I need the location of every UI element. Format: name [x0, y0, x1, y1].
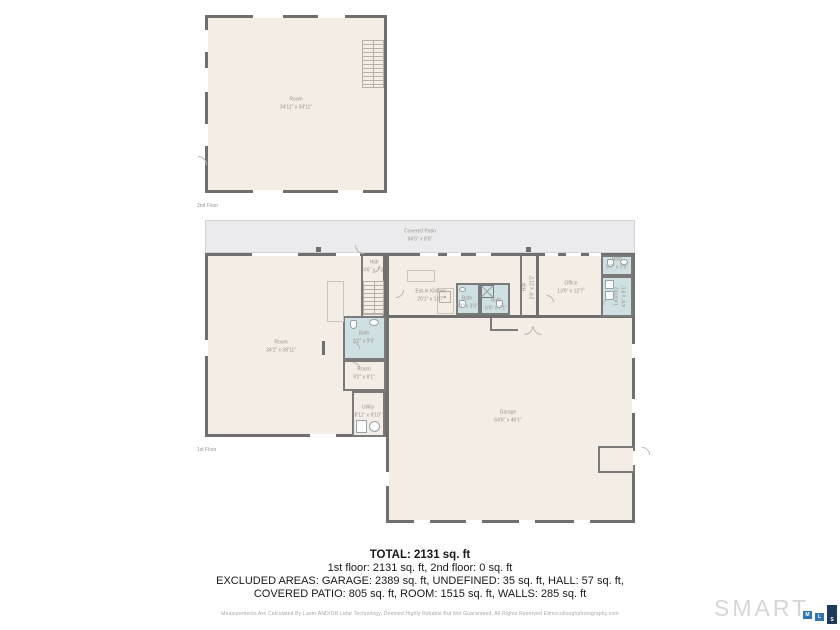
staircase — [362, 40, 384, 88]
toilet-icon — [350, 320, 357, 329]
patio-post — [526, 247, 531, 252]
room-name: Room — [353, 367, 375, 375]
floor-caption-1st: 1st Floor — [197, 447, 216, 453]
room-name: Bath — [456, 296, 478, 304]
staircase — [363, 281, 384, 315]
window — [205, 124, 208, 146]
area-summary: TOTAL: 2131 sq. ft 1st floor: 2131 sq. f… — [0, 549, 840, 601]
summary-floors: 1st floor: 2131 sq. ft, 2nd floor: 0 sq.… — [0, 562, 840, 575]
wall-post — [322, 341, 325, 355]
logo-box-l: L — [815, 613, 824, 621]
logo-box-m: M — [803, 611, 812, 619]
water-heater-icon — [369, 421, 380, 432]
room-name: Bath — [606, 257, 628, 265]
room-label: Hall 2'8" x 21'2" — [522, 275, 537, 300]
door-swing-arc — [634, 447, 650, 463]
closet-outline — [327, 281, 344, 322]
room-label: Office 13'9" x 12'7" — [557, 281, 584, 296]
window — [253, 15, 283, 18]
room-name: Garage — [494, 410, 521, 418]
kitchen-counter-outline — [407, 270, 435, 282]
room-dims: 6'7" x 3'9" — [606, 264, 628, 272]
room-label: Bath 8'1" x 3'6" — [456, 296, 478, 311]
room-dims: 13'9" x 12'7" — [557, 288, 584, 296]
summary-total: TOTAL: 2131 sq. ft — [0, 549, 840, 562]
window — [476, 253, 491, 256]
door-opening — [633, 451, 636, 465]
floor-caption-2nd: 2nd Floor — [197, 203, 218, 209]
window — [338, 190, 363, 193]
room-name: Hall — [522, 275, 530, 300]
window — [545, 253, 558, 256]
room-name: Bath — [485, 298, 507, 306]
window — [205, 30, 208, 52]
room-label: Room 34'1" x 38'11" — [266, 340, 296, 355]
window — [420, 253, 438, 256]
garage-door-opening — [466, 520, 482, 523]
room-dims: 34'1" x 38'11" — [266, 347, 296, 355]
window — [632, 399, 635, 413]
window — [318, 15, 345, 18]
sink-icon — [369, 319, 379, 326]
room-dims: 34'11" x 34'11" — [280, 104, 312, 112]
window — [632, 344, 635, 358]
room-name: Room — [280, 97, 312, 105]
room-name: Bath — [353, 331, 375, 339]
room-name: Office — [557, 281, 584, 289]
window — [205, 340, 208, 356]
room-label: Garage 54'6" x 46'1" — [494, 410, 521, 425]
shower-icon — [480, 285, 494, 298]
room-name: Laundry — [614, 285, 622, 307]
window — [589, 253, 601, 256]
room-name: Utility — [354, 405, 381, 413]
room-dims: 20'1" x 12'7" — [415, 296, 446, 304]
room-label: Room 9'2" x 8'1" — [353, 367, 375, 382]
logo-wordmark: SMART — [714, 597, 809, 620]
sink-icon — [459, 287, 466, 292]
floor-plan-sheet: Room 34'11" x 34'11" 2nd Floor Covered P… — [0, 0, 840, 630]
room-dims: 8'1" x 3'6" — [456, 303, 478, 311]
window — [252, 253, 298, 256]
room-label: Bath 9'2" x 9'8" — [353, 331, 375, 346]
room-dims: 9'2" x 9'8" — [353, 338, 375, 346]
room-name: Hall — [363, 260, 385, 268]
room-label: Hall 4'6" x 7'3" — [363, 260, 385, 275]
room-label: Room 34'11" x 34'11" — [280, 97, 312, 112]
window — [566, 253, 581, 256]
logo-box-s: S — [827, 605, 837, 624]
window — [253, 190, 283, 193]
room-label: Laundry 4'6" x 9'1" — [614, 285, 629, 307]
room-name: Covered Patio — [404, 229, 436, 237]
window — [386, 472, 389, 486]
room-dims: 6'6" x 7'1" — [485, 305, 507, 313]
room-dims: 94'5" x 8'5" — [404, 236, 436, 244]
utility-unit-icon — [356, 420, 367, 433]
room-label: Eat-in Kitchen 20'1" x 12'7" — [415, 289, 446, 304]
smart-mls-logo: SMART M L S — [700, 596, 840, 628]
window — [336, 253, 360, 256]
interior-wall — [490, 329, 518, 331]
summary-excluded-1: EXCLUDED AREAS: GARAGE: 2389 sq. ft, UND… — [0, 575, 840, 588]
room-dims: 4'6" x 7'3" — [363, 267, 385, 275]
room-name: Room — [266, 340, 296, 348]
garage-bump-room — [598, 446, 635, 473]
room-dims: 9'2" x 8'1" — [353, 374, 375, 382]
window — [447, 253, 461, 256]
room-dims: 4'6" x 9'1" — [621, 285, 629, 307]
room-name: Eat-in Kitchen — [415, 289, 446, 297]
window — [205, 68, 208, 92]
window — [310, 434, 336, 437]
room-dims: 8'11" x 9'10" — [354, 412, 381, 420]
garage-door-opening — [574, 520, 590, 523]
room-label: Utility 8'11" x 9'10" — [354, 405, 381, 420]
room-label: Bath 6'7" x 3'9" — [606, 257, 628, 272]
garage-door-opening — [414, 520, 430, 523]
room-label: Covered Patio 94'5" x 8'5" — [404, 229, 436, 244]
patio-post — [316, 247, 321, 252]
room-dims: 2'8" x 21'2" — [529, 275, 537, 300]
room-dims: 54'6" x 46'1" — [494, 417, 521, 425]
garage-door-opening — [519, 520, 535, 523]
room-label: Bath 6'6" x 7'1" — [485, 298, 507, 313]
